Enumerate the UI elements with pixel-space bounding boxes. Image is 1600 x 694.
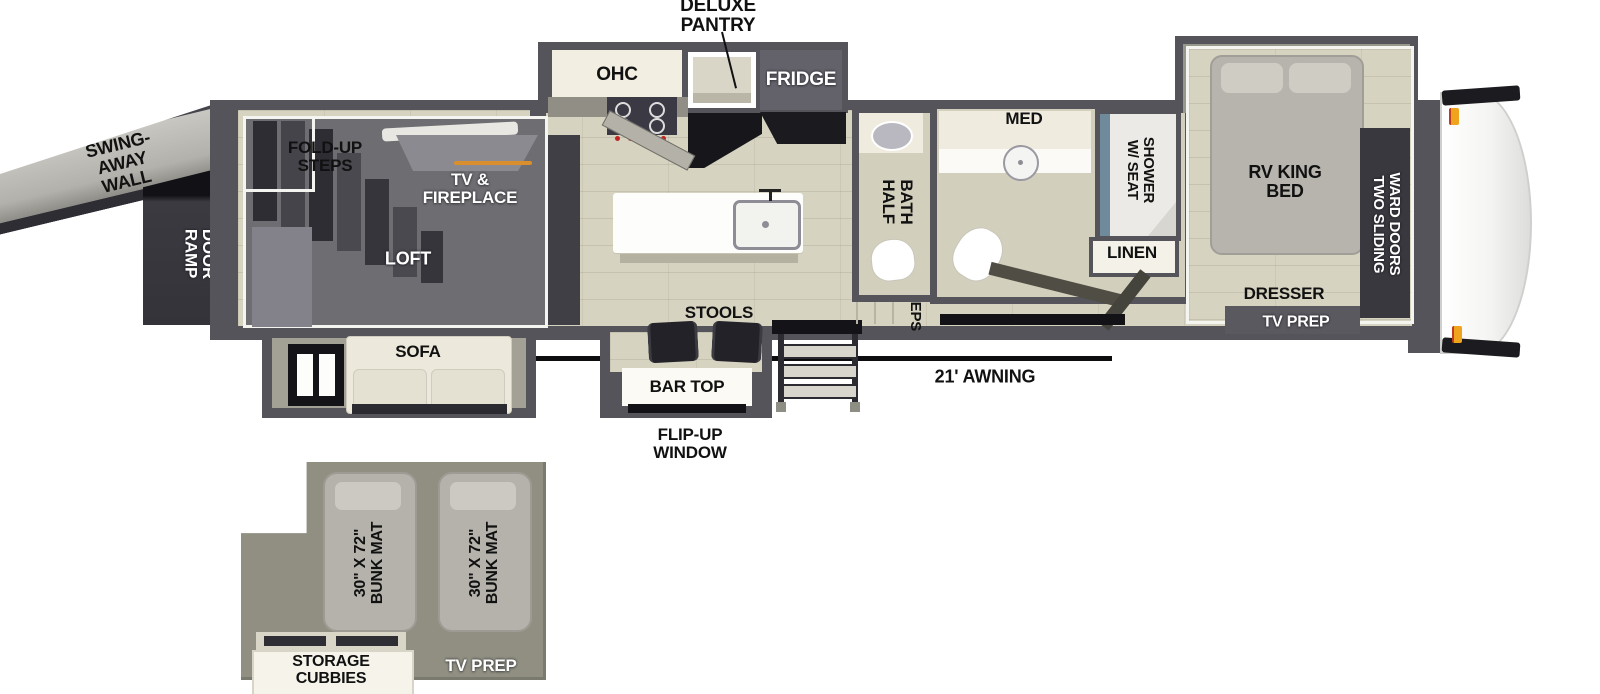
fireplace-glow <box>454 161 532 165</box>
stool <box>711 321 763 364</box>
pillow <box>1289 63 1351 93</box>
burner-icon <box>649 102 665 118</box>
loft-label: LOFT <box>385 250 431 269</box>
storage-cubbies-top <box>256 632 406 650</box>
sofa-label: SOFA <box>395 343 441 361</box>
marker-light <box>1452 326 1462 343</box>
flip-up-window-glass <box>628 404 746 413</box>
sink <box>733 200 801 250</box>
bunk-mat: 30" X 72" BUNK MAT <box>438 472 532 632</box>
bath-sink <box>1003 145 1039 181</box>
bunk-mat: 30" X 72" BUNK MAT <box>323 472 417 632</box>
entry-steps <box>776 334 860 406</box>
bath-toilet <box>944 219 1012 289</box>
stool <box>647 321 699 364</box>
flip-up-window-label: FLIP-UP WINDOW <box>653 426 726 462</box>
loft-lower-cabinet <box>252 227 312 327</box>
bunk-mat-label: 30" X 72" BUNK MAT <box>468 488 502 638</box>
kitchen-island <box>613 193 803 253</box>
step-tread <box>782 384 858 399</box>
bar-top-label: BAR TOP <box>650 378 725 396</box>
window-pane <box>319 354 335 396</box>
garage-window <box>288 344 344 406</box>
drain-icon <box>762 221 769 228</box>
tv-fireplace-label: TV & FIREPLACE <box>423 171 518 207</box>
shower-seat <box>1148 202 1176 236</box>
bunk-mat-label: 30" X 72" BUNK MAT <box>353 488 387 638</box>
faucet-icon <box>769 189 772 201</box>
stove-knob <box>615 136 620 141</box>
half-bath-label: HALF BATH <box>879 179 915 224</box>
sofa-cushion <box>431 369 505 409</box>
fold-up-steps-label: FOLD-UP STEPS <box>288 139 362 175</box>
fridge-label: FRIDGE <box>766 70 837 90</box>
shower-glass <box>1100 114 1110 236</box>
rear-wall <box>210 100 238 340</box>
step-tread <box>782 364 858 379</box>
step-tread <box>782 344 858 359</box>
entry-mat <box>772 320 862 334</box>
sofa-cushion <box>353 369 427 409</box>
rv-king-bed <box>1210 55 1364 255</box>
ward-doors-label: TWO SLIDING WARD DOORS <box>1370 172 1402 275</box>
med-label: MED <box>1005 110 1042 128</box>
linen-label: LINEN <box>1107 244 1157 262</box>
drain-icon <box>1018 160 1023 165</box>
awning-label: 21' AWNING <box>935 368 1036 387</box>
window-pane <box>297 354 313 396</box>
ohc-label: OHC <box>596 65 638 85</box>
deluxe-pantry-label: DELUXE PANTRY <box>680 0 756 36</box>
inset-tv-prep-label: TV PREP <box>445 657 516 675</box>
dresser-label: DRESSER <box>1244 285 1325 303</box>
kitchen-tall-cabinet <box>546 135 580 325</box>
cubby-slot <box>336 636 398 646</box>
marker-light <box>1449 108 1459 125</box>
pantry-cabinet <box>688 52 756 108</box>
hall-mat <box>940 314 1125 325</box>
bedroom-tv-prep-label: TV PREP <box>1262 315 1329 332</box>
step-foot <box>776 402 786 412</box>
cubby-slot <box>264 636 326 646</box>
sofa-floor-mat <box>352 404 507 414</box>
pillow <box>1221 63 1283 93</box>
rv-king-bed-label: RV KING BED <box>1248 163 1321 201</box>
stools-label: STOOLS <box>685 304 753 322</box>
shower-label: SHOWER W/ SEAT <box>1124 137 1156 203</box>
toilet <box>869 237 917 283</box>
storage-cubbies-label: STORAGE CUBBIES <box>292 654 369 688</box>
front-cap <box>1440 92 1532 354</box>
pantry-interior <box>693 57 751 103</box>
step-foot <box>850 402 860 412</box>
half-bath-sink <box>871 121 913 151</box>
cap-top-trim <box>1442 85 1521 105</box>
tv-console <box>396 135 538 171</box>
rv-floorplan: SWING-AWAY WALL RAMP DOOR 21' AWNING OHC… <box>0 0 1600 694</box>
